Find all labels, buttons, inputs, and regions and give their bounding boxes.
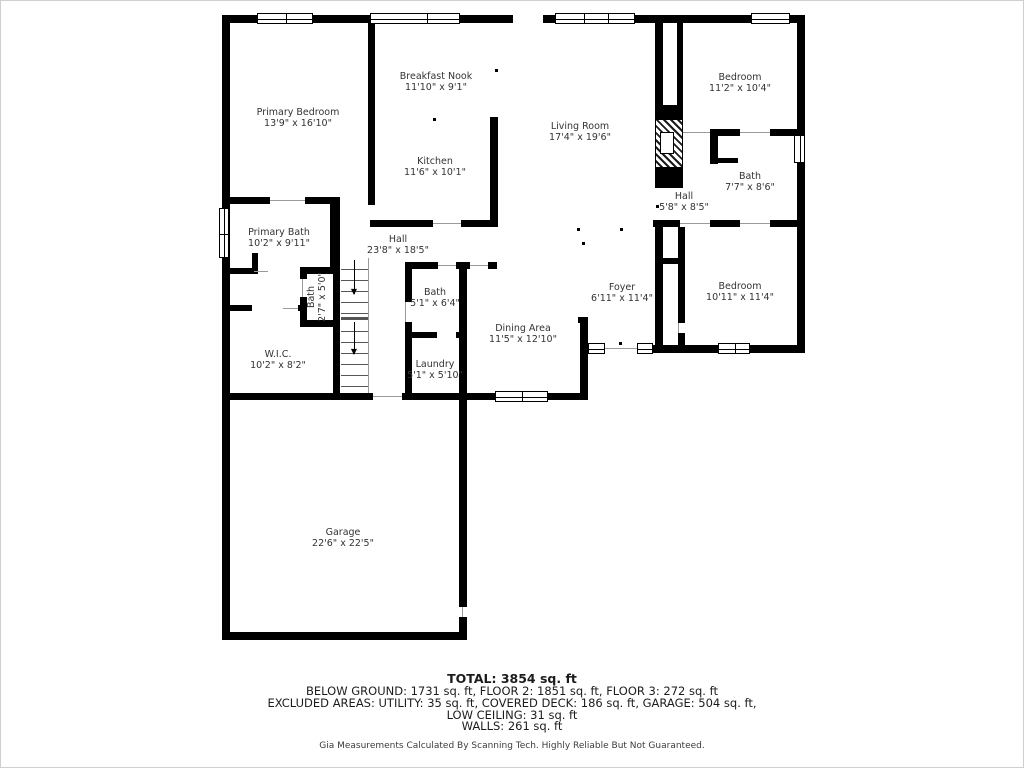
door-swing-dot [433, 118, 436, 121]
floorplan-drawing: ▼▼Primary Bedroom13'9" x 16'10"Breakfast… [0, 0, 1024, 768]
room-dimensions: 13'9" x 16'10" [257, 118, 340, 129]
door-opening-line [680, 132, 710, 133]
window-pane-line [371, 19, 459, 20]
stair-arrow-down-icon: ▼ [348, 288, 360, 296]
window [718, 343, 750, 354]
room-label-bath-small: Bath2'7" x 5'0" [306, 272, 328, 322]
wall [488, 262, 497, 269]
door-opening-line [368, 258, 369, 393]
wall [678, 333, 685, 345]
window [794, 135, 805, 163]
walls-area-text: WALLS: 261 sq. ft [0, 721, 1024, 733]
door-opening-line [254, 271, 268, 272]
room-name: Primary Bath [248, 227, 310, 238]
room-label-foyer: Foyer6'11" x 11'4" [591, 282, 653, 304]
room-name: Primary Bedroom [257, 107, 340, 118]
stair-landing-line [341, 317, 368, 320]
window-pane-line [638, 349, 652, 350]
window [219, 208, 229, 258]
wall [333, 197, 340, 393]
room-label-bedroom-lower: Bedroom10'11" x 11'4" [706, 281, 774, 303]
wall [710, 129, 740, 136]
wall [222, 197, 270, 204]
window-pane-line [224, 209, 225, 257]
window-mullion [220, 234, 228, 235]
room-dimensions: 5'1" x 5'10" [407, 370, 463, 381]
window [751, 13, 790, 24]
door-opening-line [605, 348, 637, 349]
wall [677, 23, 683, 105]
door-opening-line [433, 223, 461, 224]
window-mullion [735, 344, 736, 353]
room-dimensions: 2'7" x 5'0" [317, 272, 328, 322]
window-pane-line [752, 19, 789, 20]
door-opening-line [680, 223, 710, 224]
wall [252, 253, 258, 269]
wall [678, 227, 685, 323]
area-summary: TOTAL: 3854 sq. ft BELOW GROUND: 1731 sq… [0, 673, 1024, 751]
room-dimensions: 6'11" x 11'4" [591, 293, 653, 304]
wall [461, 220, 497, 227]
room-label-living-room: Living Room17'4" x 19'6" [549, 121, 611, 143]
room-label-breakfast-nook: Breakfast Nook11'10" x 9'1" [400, 71, 472, 93]
door-swing-dot [619, 342, 622, 345]
room-dimensions: 10'2" x 9'11" [248, 238, 310, 249]
wall [653, 345, 718, 353]
window-pane-line [719, 349, 749, 350]
room-name: Bedroom [706, 281, 774, 292]
window-pane-line [589, 349, 604, 350]
wall [718, 158, 738, 163]
window-mullion [522, 392, 523, 401]
room-dimensions: 17'4" x 19'6" [549, 132, 611, 143]
stair-tread [341, 375, 368, 376]
window [370, 13, 460, 24]
room-dimensions: 10'11" x 11'4" [706, 292, 774, 303]
room-name: Hall [367, 234, 429, 245]
wall [653, 220, 680, 227]
stair-arrow-down-icon: ▼ [348, 348, 360, 356]
room-dimensions: 11'2" x 10'4" [709, 83, 771, 94]
room-label-kitchen: Kitchen11'6" x 10'1" [404, 156, 466, 178]
wall [222, 15, 230, 640]
door-opening-line [405, 302, 406, 322]
room-name: Dining Area [489, 323, 557, 334]
wall [368, 23, 375, 205]
wall [459, 617, 467, 640]
door-swing-dot [495, 69, 498, 72]
wall [222, 393, 373, 400]
room-dimensions: 23'8" x 18'5" [367, 245, 429, 256]
wall [797, 18, 805, 353]
chimney-hatch [655, 119, 683, 168]
stair-tread [341, 302, 368, 303]
door-swing-dot [620, 228, 623, 231]
room-dimensions: 5'1" x 6'4" [410, 298, 460, 309]
room-name: Bath [306, 272, 317, 322]
room-label-hall-right: Hall5'8" x 8'5" [659, 191, 709, 213]
wall [402, 393, 495, 400]
room-name: Bath [410, 287, 460, 298]
room-dimensions: 11'10" x 9'1" [400, 82, 472, 93]
window-mullion [584, 14, 585, 23]
door-opening-line [740, 223, 770, 224]
room-label-bath-upper: Bath7'7" x 8'6" [725, 171, 775, 193]
wall [222, 305, 252, 311]
door-opening-line [283, 308, 298, 309]
door-opening-line [740, 132, 770, 133]
room-name: Bedroom [709, 72, 771, 83]
wall [459, 397, 467, 607]
wall [655, 168, 683, 188]
room-dimensions: 11'6" x 10'1" [404, 167, 466, 178]
wall [222, 632, 467, 640]
disclaimer-text: Gia Measurements Calculated By Scanning … [0, 741, 1024, 751]
wall [655, 227, 663, 345]
window-pane-line [556, 19, 634, 20]
stair-tread [341, 364, 368, 365]
room-name: Breakfast Nook [400, 71, 472, 82]
stair-tread [341, 386, 368, 387]
room-label-laundry: Laundry5'1" x 5'10" [407, 359, 463, 381]
window [555, 13, 635, 24]
wall [405, 332, 437, 338]
wall [770, 220, 803, 227]
wall [655, 258, 683, 264]
room-name: W.I.C. [250, 349, 306, 360]
window-mullion [286, 14, 287, 23]
room-dimensions: 11'5" x 12'10" [489, 334, 557, 345]
room-label-hall-main: Hall23'8" x 18'5" [367, 234, 429, 256]
room-label-bath-middle: Bath5'1" x 6'4" [410, 287, 460, 309]
room-name: Kitchen [404, 156, 466, 167]
door-swing-dot [577, 228, 580, 231]
room-dimensions: 10'2" x 8'2" [250, 360, 306, 371]
door-opening-line [678, 323, 679, 333]
wall [655, 23, 663, 105]
window-mullion [427, 14, 428, 23]
window [588, 343, 605, 354]
door-opening-line [270, 200, 305, 201]
room-name: Bath [725, 171, 775, 182]
wall [456, 262, 470, 269]
chimney-flue [660, 132, 674, 154]
room-dimensions: 22'6" x 22'5" [312, 538, 374, 549]
door-swing-dot [582, 242, 585, 245]
room-name: Hall [659, 191, 709, 202]
wall [770, 129, 797, 136]
window [637, 343, 653, 354]
wall [580, 323, 588, 400]
room-label-wic: W.I.C.10'2" x 8'2" [250, 349, 306, 371]
room-label-bedroom-upper: Bedroom11'2" x 10'4" [709, 72, 771, 94]
room-label-dining-area: Dining Area11'5" x 12'10" [489, 323, 557, 345]
wall [490, 117, 498, 227]
wall [710, 136, 718, 164]
wall [370, 220, 433, 227]
door-opening-line [373, 396, 402, 397]
floorplan-canvas: ▼▼Primary Bedroom13'9" x 16'10"Breakfast… [0, 0, 1024, 768]
door-opening-line [462, 607, 463, 617]
room-label-primary-bedroom: Primary Bedroom13'9" x 16'10" [257, 107, 340, 129]
room-name: Foyer [591, 282, 653, 293]
window [495, 391, 548, 402]
room-dimensions: 5'8" x 8'5" [659, 202, 709, 213]
wall [750, 345, 805, 353]
stair-tread [341, 313, 368, 314]
room-dimensions: 7'7" x 8'6" [725, 182, 775, 193]
window [257, 13, 313, 24]
room-label-primary-bath: Primary Bath10'2" x 9'11" [248, 227, 310, 249]
window-mullion [608, 14, 609, 23]
window-pane-line [258, 19, 312, 20]
wall [405, 262, 438, 269]
door-opening-line [438, 265, 456, 266]
room-name: Living Room [549, 121, 611, 132]
door-opening-line [470, 265, 488, 266]
room-name: Garage [312, 527, 374, 538]
wall [655, 105, 683, 119]
wall [710, 220, 740, 227]
room-name: Laundry [407, 359, 463, 370]
window-pane-line [800, 136, 801, 162]
room-label-garage: Garage22'6" x 22'5" [312, 527, 374, 549]
door-opening-line [302, 279, 303, 297]
